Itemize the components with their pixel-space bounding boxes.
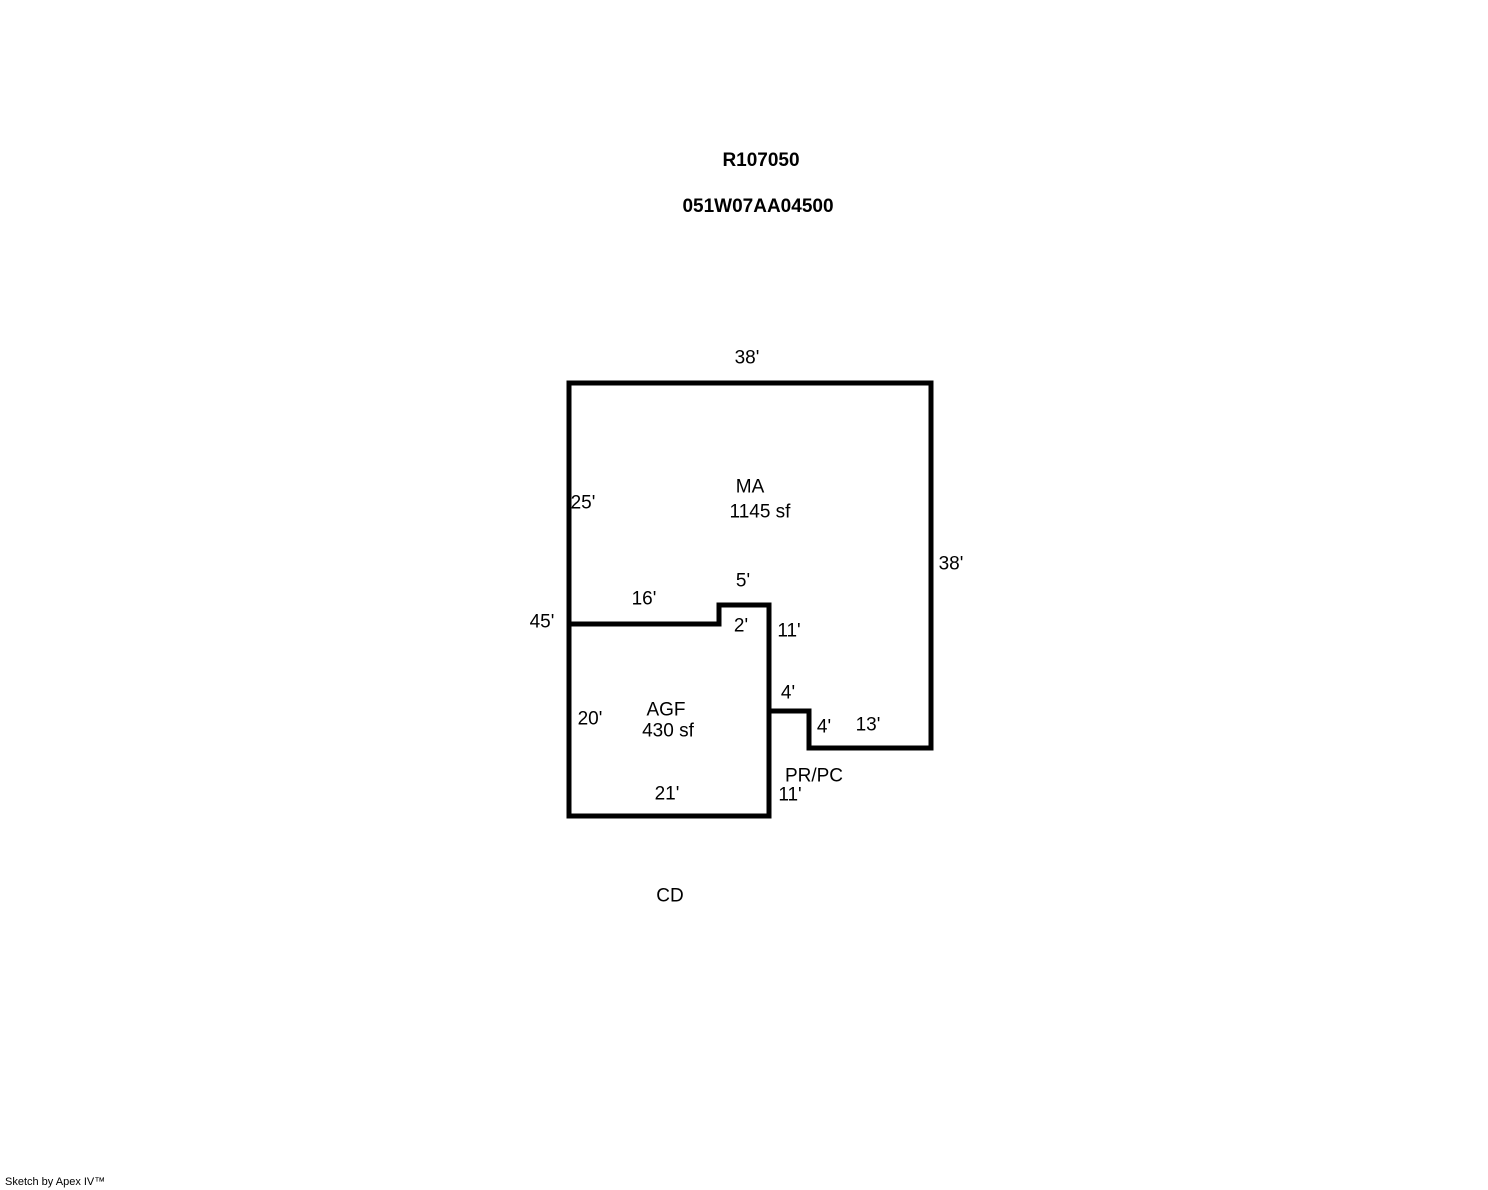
area-code-prpc: PR/PC — [785, 767, 843, 786]
dim-mid-16: 16' — [632, 590, 657, 609]
area-code-agf: AGF — [646, 701, 685, 720]
area-size-agf: 430 sf — [642, 722, 694, 741]
sketch-credit: Sketch by Apex IV™ — [5, 1176, 105, 1188]
dim-right-11-upper: 11' — [777, 622, 800, 641]
dim-step-4-lower: 4' — [817, 718, 831, 737]
dim-left-20: 20' — [578, 710, 603, 729]
dim-step-4-upper: 4' — [781, 684, 795, 703]
dim-prpc-11: 11' — [778, 786, 801, 805]
dim-right-38: 38' — [939, 555, 964, 574]
dim-notch-5: 5' — [736, 572, 750, 591]
area-code-ma: MA — [736, 478, 765, 497]
dim-left-45: 45' — [530, 613, 555, 632]
area-code-cd: CD — [656, 887, 683, 906]
dim-top-38: 38' — [735, 349, 760, 368]
dim-left-25: 25' — [571, 494, 596, 513]
dim-bottom-13: 13' — [856, 716, 881, 735]
dim-bottom-21: 21' — [655, 785, 680, 804]
sketch-page: R107050 051W07AA04500 38' 25' 38' 5' 16'… — [0, 0, 1488, 1190]
area-size-ma: 1145 sf — [730, 503, 791, 522]
ma-area-outline — [569, 383, 931, 748]
dim-notch-2: 2' — [734, 617, 748, 636]
floorplan-sketch — [0, 0, 1488, 1190]
